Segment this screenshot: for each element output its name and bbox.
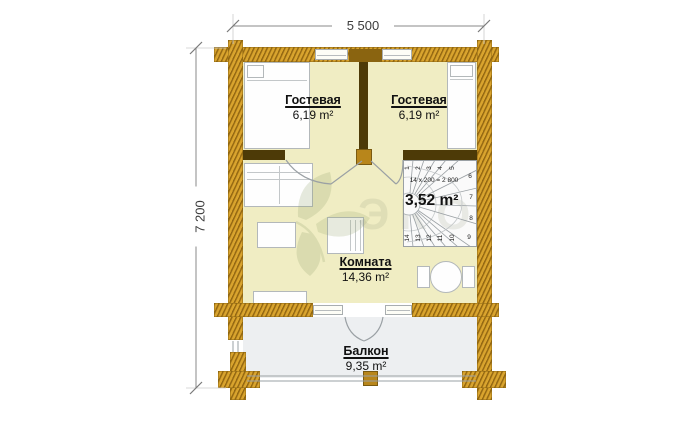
bed-pillow xyxy=(450,65,473,77)
guest-right-area: 6,19 m² xyxy=(360,108,478,123)
stairs-area-label: 3,52 m² xyxy=(405,192,458,210)
guest-right-name: Гостевая xyxy=(360,93,478,108)
balcony-name: Балкон xyxy=(306,344,426,359)
living-room-name: Комната xyxy=(308,255,423,270)
wall-left xyxy=(228,40,243,340)
wall-middle-left xyxy=(214,303,313,317)
bed-pillow xyxy=(247,65,264,78)
window-glass-line xyxy=(315,310,341,311)
window-top-right xyxy=(382,49,412,60)
living-room-label: Комната 14,36 m² xyxy=(308,255,423,285)
guest-left-area: 6,19 m² xyxy=(253,108,373,123)
dimension-left-label: 7 200 xyxy=(193,187,208,247)
railing-post-right-h xyxy=(462,371,506,388)
balcony-label: Балкон 9,35 m² xyxy=(306,344,426,374)
wall-middle-right xyxy=(412,303,499,317)
window-glass-line xyxy=(387,310,410,311)
wall-interior-left xyxy=(243,150,285,160)
window-balcony-left xyxy=(313,305,343,315)
railing-post-left-h xyxy=(218,371,260,388)
window-glass-line xyxy=(317,55,346,56)
bed-pillow-line xyxy=(450,79,473,80)
guest-left-name: Гостевая xyxy=(253,93,373,108)
door-center-post xyxy=(356,149,372,165)
guest-left-label: Гостевая 6,19 m² xyxy=(253,93,373,123)
wall-top-joint xyxy=(349,49,382,62)
balcony-area: 9,35 m² xyxy=(306,359,426,374)
chair-right xyxy=(462,266,475,288)
floor-plan-canvas: ЭКО xyxy=(0,0,700,423)
bed-blanket-line xyxy=(247,80,307,81)
dimension-top-label: 5 500 xyxy=(332,18,394,33)
guest-right-label: Гостевая 6,19 m² xyxy=(360,93,478,123)
wall-interior-right xyxy=(403,150,477,160)
living-room-area: 14,36 m² xyxy=(308,270,423,285)
window-top-left xyxy=(315,49,348,60)
dining-table xyxy=(430,261,462,293)
wall-right xyxy=(477,40,492,400)
window-balcony-right xyxy=(385,305,412,315)
window-glass-line xyxy=(384,55,410,56)
